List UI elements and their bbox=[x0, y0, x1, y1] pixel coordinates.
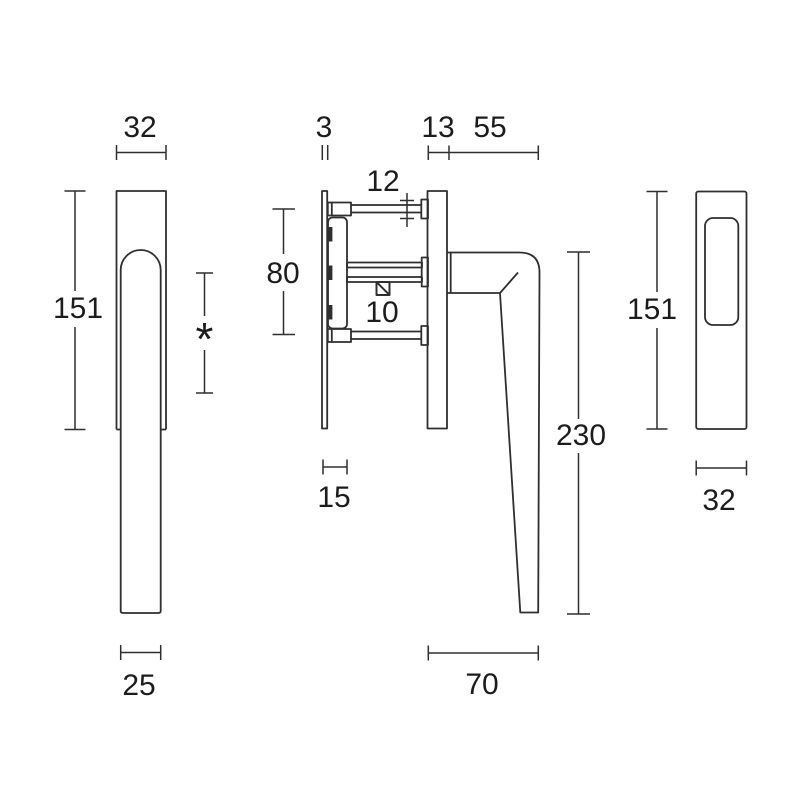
rosette-section bbox=[428, 191, 448, 429]
front-plate-outline bbox=[117, 191, 167, 430]
back-plate-recess bbox=[705, 218, 738, 325]
side-dim-plate-thickness-ticks bbox=[322, 145, 327, 160]
side-dim-rosette-depth-label: 13 bbox=[421, 111, 454, 144]
side-dim-base-depth-label: 15 bbox=[317, 481, 350, 514]
front-dim-width-bottom bbox=[121, 645, 161, 660]
side-dim-screw-dia bbox=[400, 193, 414, 227]
side-dim-screw-dia-label: 12 bbox=[366, 165, 399, 198]
handle-drawing-svg: 32 151 * 25 3 13 55 12 bbox=[0, 0, 800, 800]
front-plate-section bbox=[322, 191, 327, 429]
side-dim-depths bbox=[428, 146, 538, 161]
side-dim-projection bbox=[428, 646, 538, 661]
back-dim-height-label: 151 bbox=[627, 293, 677, 326]
side-dim-grip-depth-label: 55 bbox=[473, 111, 506, 144]
back-dim-width-label: 32 bbox=[702, 484, 735, 517]
front-dim-width-top-label: 32 bbox=[123, 111, 156, 144]
side-dim-base-depth bbox=[323, 460, 347, 475]
front-dim-height-label: 151 bbox=[53, 292, 103, 325]
screw-top bbox=[328, 200, 428, 219]
fixing-clips bbox=[327, 227, 332, 320]
back-view: 151 32 bbox=[627, 192, 747, 518]
front-grip-outline bbox=[121, 250, 161, 613]
front-view: 32 151 * 25 bbox=[53, 111, 214, 702]
front-dim-width-bottom-label: 25 bbox=[122, 669, 155, 702]
front-dim-width-top bbox=[117, 145, 167, 160]
variable-dimension-star: * bbox=[196, 313, 214, 365]
technical-drawing-page: 32 151 * 25 3 13 55 12 bbox=[0, 0, 800, 800]
side-dim-handle-length-label: 230 bbox=[556, 419, 606, 452]
side-dim-projection-label: 70 bbox=[465, 668, 498, 701]
back-dim-width bbox=[696, 461, 746, 476]
side-dim-spindle-label: 10 bbox=[365, 296, 398, 329]
side-view: 3 13 55 12 10 80 15 bbox=[266, 111, 606, 701]
side-dim-plate-thickness-label: 3 bbox=[316, 111, 333, 144]
side-dim-screw-spacing-label: 80 bbox=[266, 257, 299, 290]
square-spindle-symbol bbox=[377, 282, 390, 295]
lever-outline bbox=[447, 253, 540, 613]
